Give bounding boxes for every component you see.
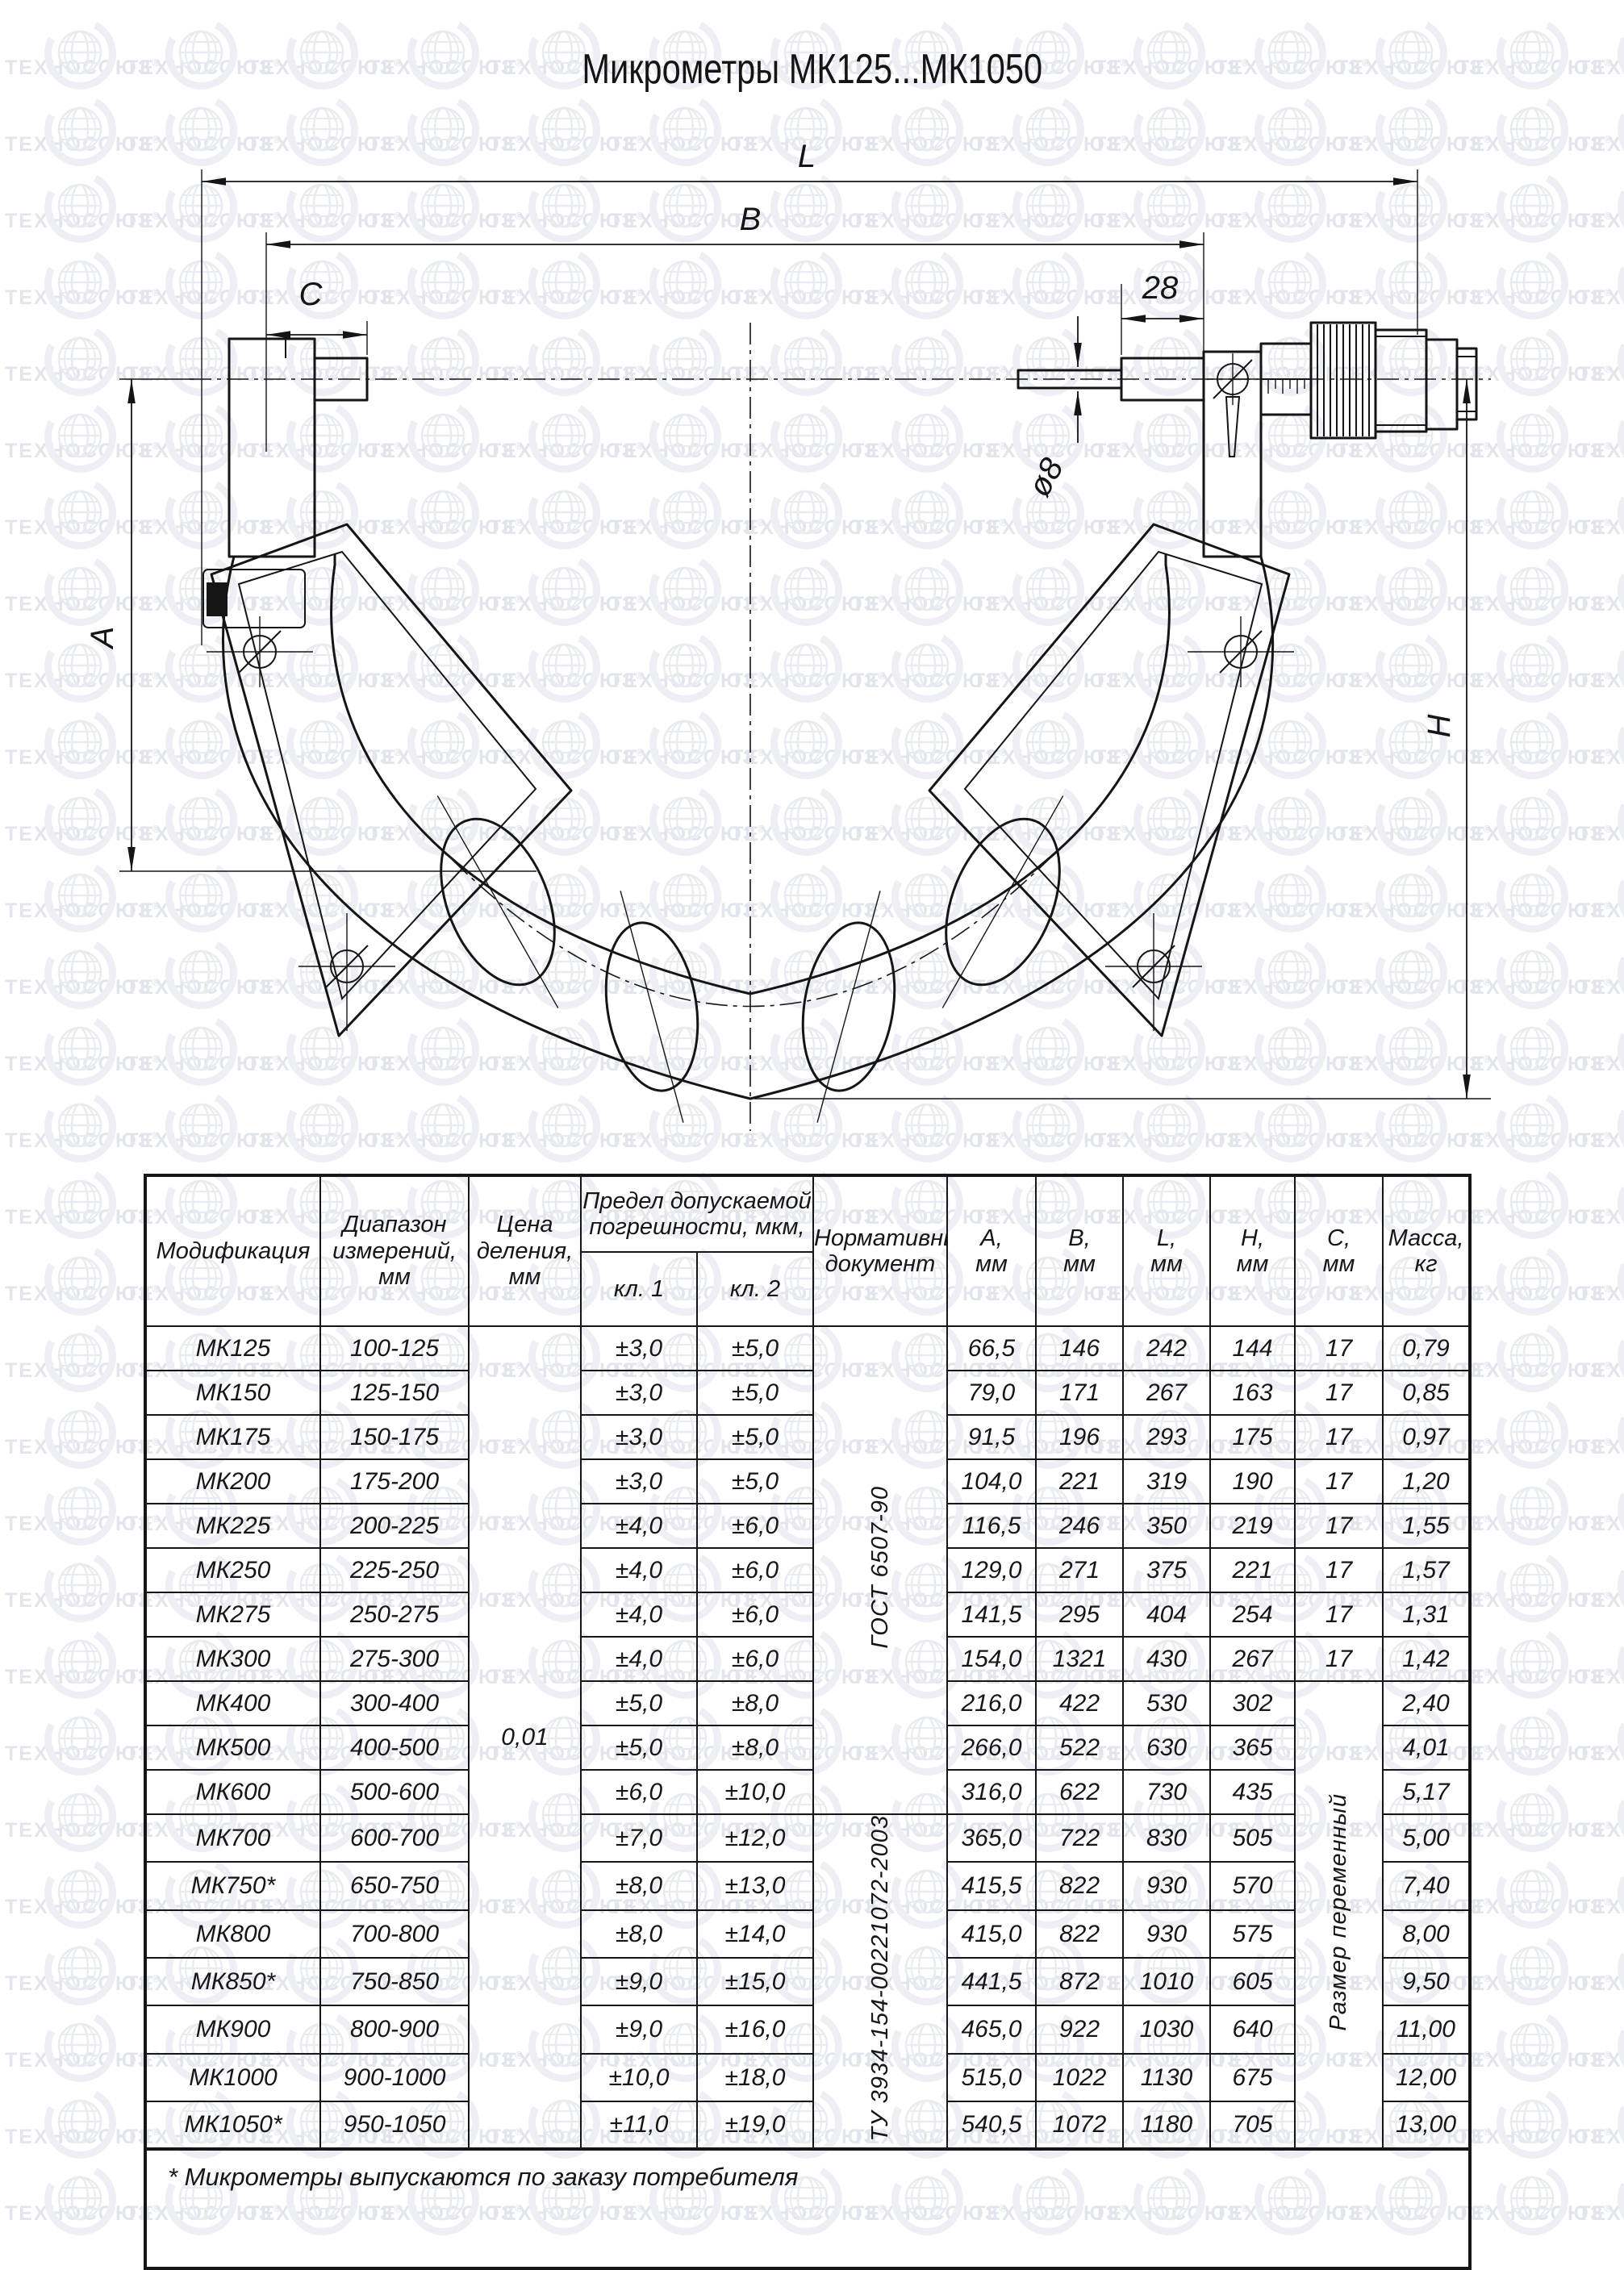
dim-label-C: C bbox=[299, 277, 324, 312]
cell-mass: 12,00 bbox=[1383, 2054, 1470, 2101]
cell-model: МК800 bbox=[145, 1910, 320, 1958]
cell-H: 254 bbox=[1210, 1592, 1295, 1637]
table-row: МК500 400-500 ±5,0 ±8,0 266,0 522 630 36… bbox=[145, 1725, 1470, 1770]
cell-normdoc-tu: ТУ 3934-154-00221072-2003 bbox=[813, 1814, 947, 2149]
cell-A: 515,0 bbox=[947, 2054, 1036, 2101]
cell-class2: ±6,0 bbox=[697, 1504, 813, 1548]
cell-class1: ±9,0 bbox=[581, 1958, 697, 2005]
cell-C-variable: Размер переменный bbox=[1295, 1681, 1383, 2149]
micrometer-head bbox=[1018, 323, 1476, 557]
cell-range: 600-700 bbox=[320, 1814, 469, 1862]
cell-mass: 9,50 bbox=[1383, 1958, 1470, 2005]
cell-class1: ±3,0 bbox=[581, 1415, 697, 1459]
cell-B: 622 bbox=[1036, 1770, 1123, 1814]
cell-class2: ±12,0 bbox=[697, 1814, 813, 1862]
cell-H: 705 bbox=[1210, 2101, 1295, 2149]
cell-C: 17 bbox=[1295, 1459, 1383, 1504]
table-row: МК750* 650-750 ±8,0 ±13,0 415,5 822 930 … bbox=[145, 1862, 1470, 1909]
dim-label-28: 28 bbox=[1142, 270, 1179, 306]
cell-A: 154,0 bbox=[947, 1637, 1036, 1681]
col-header-A: А, мм bbox=[947, 1175, 1036, 1326]
cell-mass: 5,00 bbox=[1383, 1814, 1470, 1862]
cell-L: 830 bbox=[1123, 1814, 1210, 1862]
cell-A: 141,5 bbox=[947, 1592, 1036, 1637]
cell-mass: 1,42 bbox=[1383, 1637, 1470, 1681]
cell-model: МК175 bbox=[145, 1415, 320, 1459]
cell-class1: ±4,0 bbox=[581, 1504, 697, 1548]
cell-model: МК250 bbox=[145, 1548, 320, 1592]
cell-class1: ±4,0 bbox=[581, 1548, 697, 1592]
cell-class2: ±6,0 bbox=[697, 1592, 813, 1637]
col-header-C: С, мм bbox=[1295, 1175, 1383, 1326]
cell-A: 91,5 bbox=[947, 1415, 1036, 1459]
cell-class1: ±3,0 bbox=[581, 1371, 697, 1415]
dim-label-B: B bbox=[740, 202, 762, 237]
centerlines bbox=[190, 323, 1491, 1131]
cell-class1: ±7,0 bbox=[581, 1814, 697, 1862]
cell-mass: 1,55 bbox=[1383, 1504, 1470, 1548]
col-header-modification: Модификация bbox=[145, 1175, 320, 1326]
cell-class1: ±11,0 bbox=[581, 2101, 697, 2149]
cell-C: 17 bbox=[1295, 1637, 1383, 1681]
watermark-text: ТЕХНОСОЮЗ® bbox=[1578, 1819, 1624, 1842]
cell-model: МК225 bbox=[145, 1504, 320, 1548]
cell-class1: ±3,0 bbox=[581, 1459, 697, 1504]
cell-A: 129,0 bbox=[947, 1548, 1036, 1592]
table-row: МК125 100-125 0,01 ±3,0 ±5,0 ГОСТ 6507-9… bbox=[145, 1326, 1470, 1371]
thimble-body bbox=[1376, 330, 1426, 432]
cell-B: 271 bbox=[1036, 1548, 1123, 1592]
cell-B: 196 bbox=[1036, 1415, 1123, 1459]
cell-range: 950-1050 bbox=[320, 2101, 469, 2149]
col-header-class2: кл. 2 bbox=[697, 1252, 813, 1326]
cell-L: 930 bbox=[1123, 1862, 1210, 1909]
cell-L: 293 bbox=[1123, 1415, 1210, 1459]
footnote-row: * Микрометры выпускаются по заказу потре… bbox=[145, 2149, 1470, 2268]
cell-A: 540,5 bbox=[947, 2101, 1036, 2149]
cell-class2: ±16,0 bbox=[697, 2005, 813, 2053]
cell-range: 150-175 bbox=[320, 1415, 469, 1459]
dim-C: C bbox=[266, 277, 367, 335]
table-row: МК600 500-600 ±6,0 ±10,0 316,0 622 730 4… bbox=[145, 1770, 1470, 1814]
cell-mass: 11,00 bbox=[1383, 2005, 1470, 2053]
col-header-class1: кл. 1 bbox=[581, 1252, 697, 1326]
col-header-B: В, мм bbox=[1036, 1175, 1123, 1326]
cell-H: 605 bbox=[1210, 1958, 1295, 2005]
table-row: МК400 300-400 ±5,0 ±8,0 216,0 422 530 30… bbox=[145, 1681, 1470, 1725]
cell-class2: ±13,0 bbox=[697, 1862, 813, 1909]
cell-class1: ±8,0 bbox=[581, 1910, 697, 1958]
cell-L: 1180 bbox=[1123, 2101, 1210, 2149]
cell-B: 822 bbox=[1036, 1910, 1123, 1958]
cell-model: МК300 bbox=[145, 1637, 320, 1681]
cell-mass: 2,40 bbox=[1383, 1681, 1470, 1725]
cell-mass: 0,85 bbox=[1383, 1371, 1470, 1415]
cell-model: МК600 bbox=[145, 1770, 320, 1814]
watermark-text: ТЕХНОСОЮЗ® bbox=[1578, 1666, 1624, 1688]
cell-class2: ±8,0 bbox=[697, 1681, 813, 1725]
cell-class2: ±5,0 bbox=[697, 1415, 813, 1459]
cell-A: 365,0 bbox=[947, 1814, 1036, 1862]
cell-class1: ±9,0 bbox=[581, 2005, 697, 2053]
cell-mass: 13,00 bbox=[1383, 2101, 1470, 2149]
cell-H: 267 bbox=[1210, 1637, 1295, 1681]
cell-mass: 1,20 bbox=[1383, 1459, 1470, 1504]
cell-L: 350 bbox=[1123, 1504, 1210, 1548]
cell-range: 175-200 bbox=[320, 1459, 469, 1504]
cell-A: 66,5 bbox=[947, 1326, 1036, 1371]
cell-range: 750-850 bbox=[320, 1958, 469, 2005]
dim-d8: ø8 bbox=[1021, 316, 1078, 503]
cell-C: 17 bbox=[1295, 1326, 1383, 1371]
cell-mass: 7,40 bbox=[1383, 1862, 1470, 1909]
cell-model: МК1050* bbox=[145, 2101, 320, 2149]
table-footnote: * Микрометры выпускаются по заказу потре… bbox=[145, 2149, 1470, 2268]
cell-A: 415,5 bbox=[947, 1862, 1036, 1909]
table-row: МК800 700-800 ±8,0 ±14,0 415,0 822 930 5… bbox=[145, 1910, 1470, 1958]
cell-range: 650-750 bbox=[320, 1862, 469, 1909]
cell-C: 17 bbox=[1295, 1504, 1383, 1548]
cell-B: 1321 bbox=[1036, 1637, 1123, 1681]
cell-class2: ±14,0 bbox=[697, 1910, 813, 1958]
frame-outline bbox=[223, 555, 1273, 1099]
dim-L: L bbox=[202, 139, 1417, 182]
dim-label-L: L bbox=[798, 139, 816, 174]
cell-range: 250-275 bbox=[320, 1592, 469, 1637]
maker-logo-mark bbox=[207, 582, 228, 616]
cell-H: 570 bbox=[1210, 1862, 1295, 1909]
spec-table: Модификация Диапазон измерений, мм Цена … bbox=[144, 1174, 1472, 2270]
cell-model: МК850* bbox=[145, 1958, 320, 2005]
cell-model: МК275 bbox=[145, 1592, 320, 1637]
cell-class1: ±6,0 bbox=[581, 1770, 697, 1814]
cell-L: 375 bbox=[1123, 1548, 1210, 1592]
cell-range: 275-300 bbox=[320, 1637, 469, 1681]
watermark-text: ТЕХНОСОЮЗ® bbox=[1578, 2126, 1624, 2148]
cell-class1: ±3,0 bbox=[581, 1326, 697, 1371]
cell-model: МК900 bbox=[145, 2005, 320, 2053]
cell-A: 216,0 bbox=[947, 1681, 1036, 1725]
cell-L: 430 bbox=[1123, 1637, 1210, 1681]
dim-B: B bbox=[266, 202, 1204, 244]
cell-mass: 0,79 bbox=[1383, 1326, 1470, 1371]
cell-H: 302 bbox=[1210, 1681, 1295, 1725]
cell-L: 267 bbox=[1123, 1371, 1210, 1415]
cell-H: 219 bbox=[1210, 1504, 1295, 1548]
cell-C: 17 bbox=[1295, 1548, 1383, 1592]
cell-class1: ±5,0 bbox=[581, 1725, 697, 1770]
table-row: МК250 225-250 ±4,0 ±6,0 129,0 271 375 22… bbox=[145, 1548, 1470, 1592]
cell-B: 422 bbox=[1036, 1681, 1123, 1725]
watermark-text: ТЕХНОСОЮЗ® bbox=[1578, 2202, 1624, 2225]
cell-C: 17 bbox=[1295, 1592, 1383, 1637]
col-header-H: Н, мм bbox=[1210, 1175, 1295, 1326]
cell-range: 300-400 bbox=[320, 1681, 469, 1725]
cell-mass: 1,31 bbox=[1383, 1592, 1470, 1637]
watermark-text: ТЕХНОСОЮЗ® bbox=[1578, 1513, 1624, 1535]
table-row: МК300 275-300 ±4,0 ±6,0 154,0 1321 430 2… bbox=[145, 1637, 1470, 1681]
table-row: МК1000 900-1000 ±10,0 ±18,0 515,0 1022 1… bbox=[145, 2054, 1470, 2101]
cell-H: 144 bbox=[1210, 1326, 1295, 1371]
cell-range: 200-225 bbox=[320, 1504, 469, 1548]
cell-class2: ±6,0 bbox=[697, 1637, 813, 1681]
cell-mass: 4,01 bbox=[1383, 1725, 1470, 1770]
cell-range: 700-800 bbox=[320, 1910, 469, 1958]
col-header-mass: Масса, кг bbox=[1383, 1175, 1470, 1326]
cell-L: 930 bbox=[1123, 1910, 1210, 1958]
micrometer-drawing: L B C 28 ø8 А Н bbox=[0, 0, 1624, 1170]
cell-class2: ±19,0 bbox=[697, 2101, 813, 2149]
cell-mass: 8,00 bbox=[1383, 1910, 1470, 1958]
col-header-L: L, мм bbox=[1123, 1175, 1210, 1326]
cell-A: 79,0 bbox=[947, 1371, 1036, 1415]
watermark-text: ТЕХНОСОЮЗ® bbox=[1578, 1283, 1624, 1305]
cell-H: 163 bbox=[1210, 1371, 1295, 1415]
cell-L: 1010 bbox=[1123, 1958, 1210, 2005]
cell-A: 415,0 bbox=[947, 1910, 1036, 1958]
cell-B: 1072 bbox=[1036, 2101, 1123, 2149]
cell-range: 800-900 bbox=[320, 2005, 469, 2053]
page-title: Микрометры МК125...МК1050 bbox=[0, 45, 1624, 94]
cell-H: 675 bbox=[1210, 2054, 1295, 2101]
cell-H: 505 bbox=[1210, 1814, 1295, 1862]
cell-class1: ±4,0 bbox=[581, 1637, 697, 1681]
cell-H: 365 bbox=[1210, 1725, 1295, 1770]
cell-L: 530 bbox=[1123, 1681, 1210, 1725]
col-header-division: Цена деления, мм bbox=[469, 1175, 581, 1326]
dim-H: Н bbox=[1422, 379, 1467, 1099]
cell-normdoc-gost: ГОСТ 6507-90 bbox=[813, 1326, 947, 1814]
cell-A: 316,0 bbox=[947, 1770, 1036, 1814]
cell-L: 630 bbox=[1123, 1725, 1210, 1770]
cell-B: 522 bbox=[1036, 1725, 1123, 1770]
table-row: МК1050* 950-1050 ±11,0 ±19,0 540,5 1072 … bbox=[145, 2101, 1470, 2149]
clamp bbox=[1207, 353, 1259, 457]
cell-A: 116,5 bbox=[947, 1504, 1036, 1548]
cell-B: 722 bbox=[1036, 1814, 1123, 1862]
col-header-normdoc: Нормативный документ bbox=[813, 1175, 947, 1326]
cell-A: 465,0 bbox=[947, 2005, 1036, 2053]
table-row: МК700 600-700 ±7,0 ±12,0 ТУ 3934-154-002… bbox=[145, 1814, 1470, 1862]
col-header-range: Диапазон измерений, мм bbox=[320, 1175, 469, 1326]
cell-division-merged: 0,01 bbox=[469, 1326, 581, 2149]
cell-H: 640 bbox=[1210, 2005, 1295, 2053]
watermark-text: ТЕХНОСОЮЗ® bbox=[1578, 1896, 1624, 1918]
cell-model: МК400 bbox=[145, 1681, 320, 1725]
cell-A: 104,0 bbox=[947, 1459, 1036, 1504]
cell-H: 221 bbox=[1210, 1548, 1295, 1592]
cell-range: 100-125 bbox=[320, 1326, 469, 1371]
cell-model: МК750* bbox=[145, 1862, 320, 1909]
cell-model: МК200 bbox=[145, 1459, 320, 1504]
cell-L: 1130 bbox=[1123, 2054, 1210, 2101]
watermark-text: ТЕХНОСОЮЗ® bbox=[1578, 1206, 1624, 1229]
cell-B: 922 bbox=[1036, 2005, 1123, 2053]
dim-A: А bbox=[85, 379, 132, 871]
cell-B: 872 bbox=[1036, 1958, 1123, 2005]
table-row: МК225 200-225 ±4,0 ±6,0 116,5 246 350 21… bbox=[145, 1504, 1470, 1548]
cell-B: 295 bbox=[1036, 1592, 1123, 1637]
cell-class2: ±18,0 bbox=[697, 2054, 813, 2101]
cell-L: 242 bbox=[1123, 1326, 1210, 1371]
sleeve bbox=[1261, 344, 1311, 415]
ratchet-cap bbox=[1426, 340, 1476, 429]
cell-C: 17 bbox=[1295, 1415, 1383, 1459]
cell-model: МК700 bbox=[145, 1814, 320, 1862]
cell-class2: ±15,0 bbox=[697, 1958, 813, 2005]
cell-L: 319 bbox=[1123, 1459, 1210, 1504]
cell-H: 575 bbox=[1210, 1910, 1295, 1958]
cell-class1: ±10,0 bbox=[581, 2054, 697, 2101]
cell-B: 822 bbox=[1036, 1862, 1123, 1909]
table-row: МК900 800-900 ±9,0 ±16,0 465,0 922 1030 … bbox=[145, 2005, 1470, 2053]
cell-model: МК125 bbox=[145, 1326, 320, 1371]
cell-L: 1030 bbox=[1123, 2005, 1210, 2053]
table-row: МК200 175-200 ±3,0 ±5,0 104,0 221 319 19… bbox=[145, 1459, 1470, 1504]
cell-class2: ±10,0 bbox=[697, 1770, 813, 1814]
table-row: МК850* 750-850 ±9,0 ±15,0 441,5 872 1010… bbox=[145, 1958, 1470, 2005]
cell-H: 190 bbox=[1210, 1459, 1295, 1504]
cell-model: МК1000 bbox=[145, 2054, 320, 2101]
cell-class2: ±6,0 bbox=[697, 1548, 813, 1592]
cell-mass: 0,97 bbox=[1383, 1415, 1470, 1459]
cell-C: 17 bbox=[1295, 1371, 1383, 1415]
watermark-text: ТЕХНОСОЮЗ® bbox=[1578, 1972, 1624, 1995]
table-row: МК150 125-150 ±3,0 ±5,0 79,0 171 267 163… bbox=[145, 1371, 1470, 1415]
cell-range: 900-1000 bbox=[320, 2054, 469, 2101]
watermark-text: ТЕХНОСОЮЗ® bbox=[1578, 1589, 1624, 1612]
cell-class2: ±8,0 bbox=[697, 1725, 813, 1770]
cell-B: 1022 bbox=[1036, 2054, 1123, 2101]
cell-range: 225-250 bbox=[320, 1548, 469, 1592]
dim-label-A: А bbox=[85, 627, 120, 650]
cell-H: 175 bbox=[1210, 1415, 1295, 1459]
cell-B: 171 bbox=[1036, 1371, 1123, 1415]
cell-B: 221 bbox=[1036, 1459, 1123, 1504]
cell-class1: ±8,0 bbox=[581, 1862, 697, 1909]
cell-L: 404 bbox=[1123, 1592, 1210, 1637]
cell-model: МК150 bbox=[145, 1371, 320, 1415]
col-header-error-limit: Предел допускаемой погрешности, мкм, bbox=[581, 1175, 813, 1252]
cell-class2: ±5,0 bbox=[697, 1371, 813, 1415]
cell-H: 435 bbox=[1210, 1770, 1295, 1814]
watermark-text: ТЕХНОСОЮЗ® bbox=[1578, 1742, 1624, 1765]
cell-class1: ±5,0 bbox=[581, 1681, 697, 1725]
watermark-text: ТЕХНОСОЮЗ® bbox=[1578, 1359, 1624, 1382]
cell-A: 266,0 bbox=[947, 1725, 1036, 1770]
table-row: МК275 250-275 ±4,0 ±6,0 141,5 295 404 25… bbox=[145, 1592, 1470, 1637]
cell-mass: 1,57 bbox=[1383, 1548, 1470, 1592]
page: { "watermark": { "text": "ТЕХНОСОЮЗ", "r… bbox=[0, 0, 1624, 2250]
cell-B: 146 bbox=[1036, 1326, 1123, 1371]
cell-range: 400-500 bbox=[320, 1725, 469, 1770]
dimensions: L B C 28 ø8 А Н bbox=[85, 139, 1491, 1099]
cell-A: 441,5 bbox=[947, 1958, 1036, 2005]
cell-L: 730 bbox=[1123, 1770, 1210, 1814]
spec-table-wrap: Модификация Диапазон измерений, мм Цена … bbox=[144, 1174, 1472, 2270]
cell-range: 125-150 bbox=[320, 1371, 469, 1415]
cell-class2: ±5,0 bbox=[697, 1459, 813, 1504]
cell-range: 500-600 bbox=[320, 1770, 469, 1814]
table-row: МК175 150-175 ±3,0 ±5,0 91,5 196 293 175… bbox=[145, 1415, 1470, 1459]
watermark-text: ТЕХНОСОЮЗ® bbox=[1578, 1436, 1624, 1458]
thimble-knurl bbox=[1311, 323, 1376, 438]
cell-model: МК500 bbox=[145, 1725, 320, 1770]
cell-class2: ±5,0 bbox=[697, 1326, 813, 1371]
cell-class1: ±4,0 bbox=[581, 1592, 697, 1637]
dim-label-H: Н bbox=[1422, 714, 1457, 737]
dim-label-d8: ø8 bbox=[1021, 452, 1071, 503]
cell-mass: 5,17 bbox=[1383, 1770, 1470, 1814]
watermark-text: ТЕХНОСОЮЗ® bbox=[1578, 2049, 1624, 2072]
dim-28: 28 bbox=[1121, 270, 1204, 319]
cell-B: 246 bbox=[1036, 1504, 1123, 1548]
